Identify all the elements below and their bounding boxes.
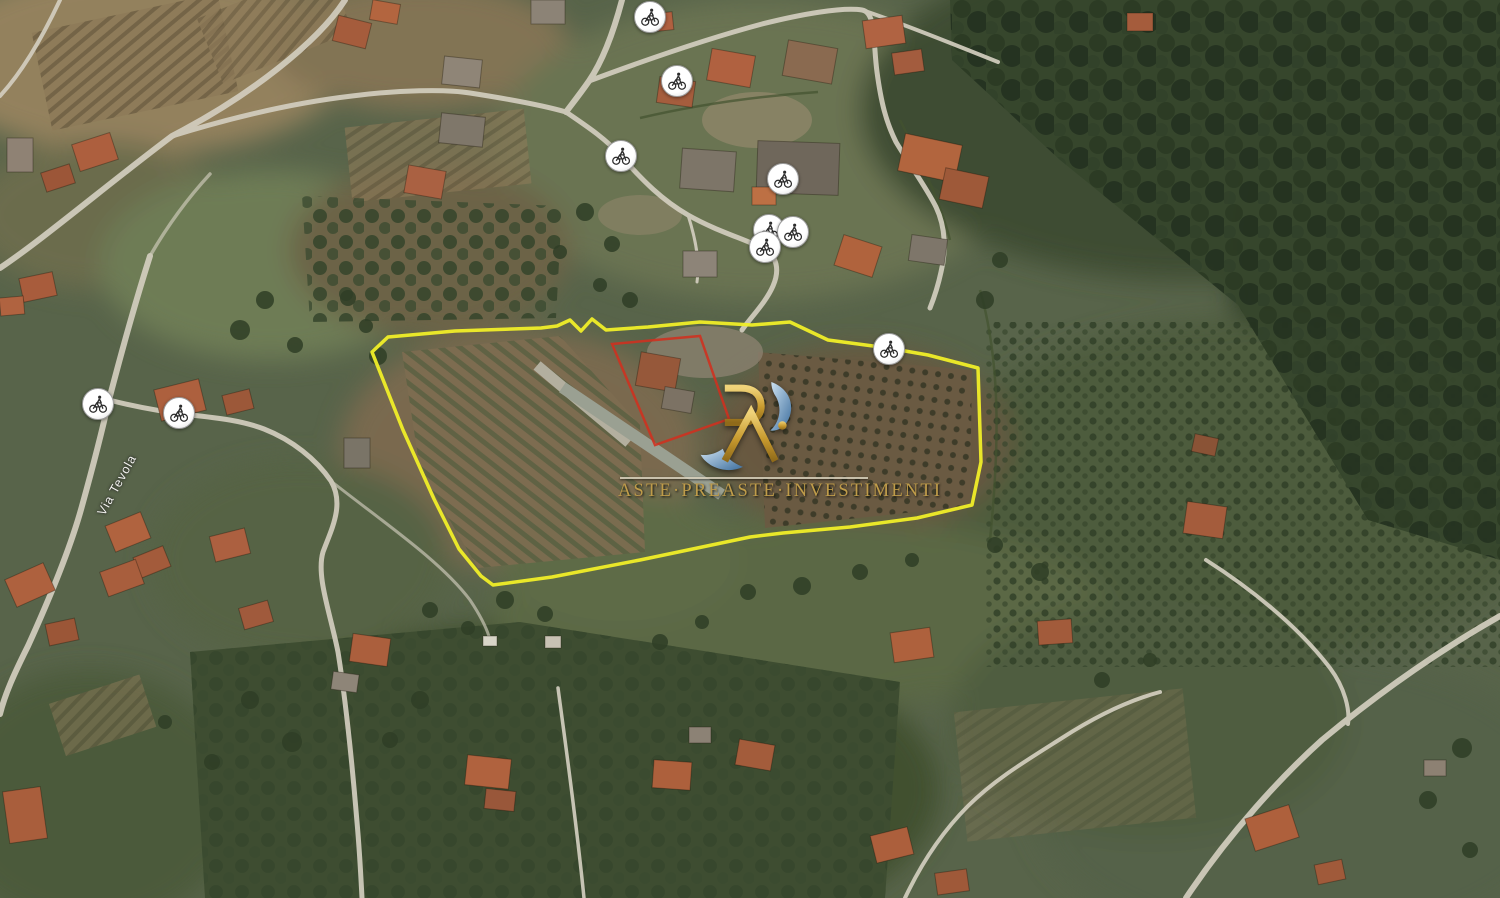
cyclist-marker[interactable] — [777, 216, 809, 248]
cyclist-marker[interactable] — [605, 140, 637, 172]
satellite-imagery — [0, 0, 1500, 898]
cyclist-icon — [666, 70, 688, 92]
cyclist-icon — [754, 236, 776, 258]
cyclist-icon — [87, 393, 109, 415]
cyclist-marker[interactable] — [634, 1, 666, 33]
cyclist-icon — [639, 6, 661, 28]
cyclist-marker[interactable] — [873, 333, 905, 365]
cyclist-marker[interactable] — [82, 388, 114, 420]
cyclist-icon — [772, 168, 794, 190]
cyclist-icon — [878, 338, 900, 360]
satellite-map: Via Tevola — [0, 0, 1500, 898]
cyclist-icon — [610, 145, 632, 167]
cyclist-icon — [782, 221, 804, 243]
cyclist-icon — [168, 402, 190, 424]
cyclist-marker[interactable] — [163, 397, 195, 429]
cyclist-marker[interactable] — [749, 231, 781, 263]
cyclist-marker[interactable] — [767, 163, 799, 195]
cyclist-marker[interactable] — [661, 65, 693, 97]
